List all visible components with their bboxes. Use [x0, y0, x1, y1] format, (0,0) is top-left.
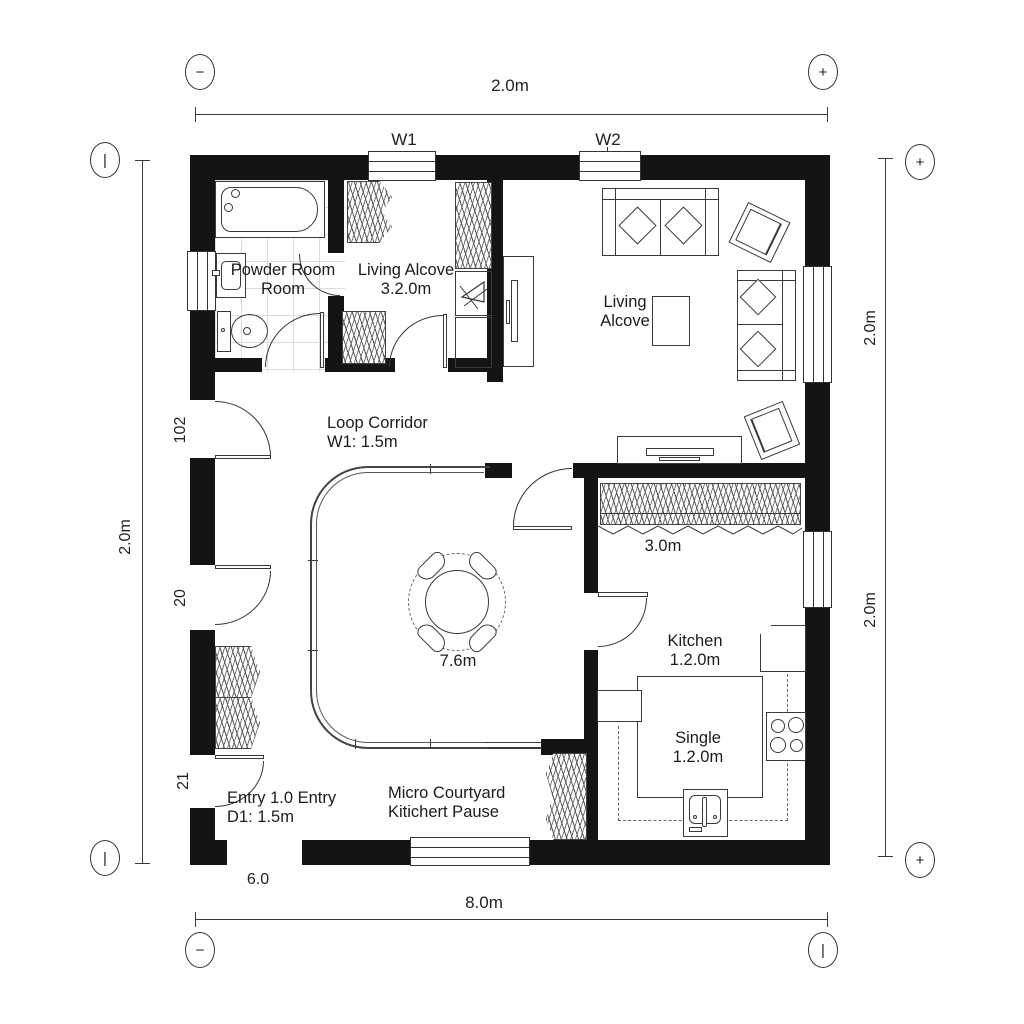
door-arc-102	[215, 401, 271, 457]
dim-label-right-bottom: 2.0m	[862, 592, 880, 628]
grid-bubble-right-top: +	[905, 144, 935, 180]
window-right-lower	[803, 531, 832, 608]
wall-stub	[541, 739, 598, 755]
label-kitchen: Kitchen 1.2.0m	[649, 632, 741, 670]
door-arc-alcove	[389, 315, 443, 367]
grid-bubble-top-left: −	[185, 54, 215, 90]
dim-tick	[195, 912, 196, 927]
wall-right	[805, 155, 830, 268]
dimension-line-left	[142, 160, 143, 864]
window-tag-w2: W2	[578, 130, 638, 150]
wall-left	[190, 155, 215, 253]
label-line: Alcove	[586, 312, 664, 331]
wall-bottom	[302, 840, 412, 865]
label-line: Powder Room	[213, 261, 353, 280]
grid-bubble-right-bottom: +	[905, 842, 935, 878]
sofa-top-arm	[705, 188, 719, 256]
wall-powder-south	[215, 358, 262, 372]
kitchen-wardrobe-rail	[600, 513, 801, 514]
door-tag-102: 102	[172, 417, 190, 444]
label-wardrobe-dim: 3.0m	[627, 537, 699, 556]
label-line: 1.2.0m	[649, 651, 741, 670]
wall-left	[190, 458, 215, 565]
bathtub-faucet	[231, 189, 240, 198]
door-leaf-alcove	[443, 314, 447, 368]
glass-tick	[430, 739, 431, 749]
label-living-alcove-room: Living Alcove 3.2.0m	[336, 261, 476, 299]
dim-tick	[827, 912, 828, 927]
kitchen-wardrobe	[600, 483, 801, 525]
label-line: Room	[213, 280, 353, 299]
grid-bubble-bottom-left: −	[185, 932, 215, 968]
sofa-right-arm	[737, 270, 796, 281]
dimension-line-top	[195, 114, 828, 115]
label-line: W1: 1.5m	[327, 433, 428, 452]
alcove-closet-bottom	[342, 311, 386, 364]
door-leaf-powder	[320, 312, 324, 368]
wall-left	[190, 310, 215, 400]
label-entry: Entry 1.0 Entry D1: 1.5m	[227, 789, 336, 827]
sofa-seat-divider	[738, 324, 782, 325]
alcove-closet-top	[347, 181, 392, 243]
desk-monitor	[646, 448, 714, 456]
window-bottom	[410, 837, 530, 866]
entry-wardrobe	[215, 646, 260, 698]
wall-right	[805, 607, 830, 865]
dimension-line-right	[885, 158, 886, 857]
label-table-dim: 7.6m	[422, 652, 494, 671]
window-w2	[579, 151, 641, 181]
door-arc-20	[215, 571, 271, 625]
round-dining-table	[425, 570, 489, 634]
sofa-top-back	[602, 188, 719, 200]
sofa-right-arm	[737, 370, 796, 381]
label-line: Loop Corridor	[327, 414, 428, 433]
label-powder-room: Powder Room Room	[213, 261, 353, 299]
wall-top	[436, 155, 581, 180]
window-left	[187, 251, 216, 311]
label-line: D1: 1.5m	[227, 808, 336, 827]
alcove-cabinet	[455, 317, 492, 368]
glass-tick	[308, 650, 318, 651]
sink-knob	[713, 815, 717, 819]
entry-wardrobe	[215, 697, 260, 749]
courtyard-closet	[546, 753, 587, 840]
dim-tick	[135, 863, 150, 864]
label-single: Single 1.2.0m	[652, 729, 744, 767]
door-tag-21: 21	[175, 772, 193, 790]
label-line: Single	[652, 729, 744, 748]
grid-bubble-top-right: +	[808, 54, 838, 90]
toilet-flush	[243, 327, 251, 335]
wall-right	[805, 382, 830, 531]
wall-top	[190, 155, 370, 180]
glass-tick	[308, 560, 318, 561]
label-living: Living Alcove	[586, 293, 664, 331]
label-line: 1.2.0m	[652, 748, 744, 767]
door-tag-6_0: 6.0	[230, 871, 286, 889]
glass-partition-ext	[484, 742, 541, 743]
stove-burner	[770, 737, 786, 753]
armchair	[729, 202, 791, 263]
label-line: Living	[586, 293, 664, 312]
glass-tick	[430, 464, 431, 474]
sofa-right-back	[782, 270, 796, 381]
alcove-wardrobe	[455, 182, 492, 269]
grid-bubble-bottom-right: |	[808, 932, 838, 968]
door-arc-kitchen	[598, 598, 647, 647]
window-w1	[368, 151, 436, 181]
door-leaf-kitchen	[598, 592, 648, 597]
dim-tick	[878, 856, 893, 857]
wall-kitchen-west	[584, 463, 598, 593]
wall-bottom	[530, 840, 830, 865]
label-micro-courtyard: Micro Courtyard Kitichert Pause	[388, 784, 505, 822]
door-leaf-20	[215, 565, 271, 569]
label-line: Entry 1.0 Entry	[227, 789, 336, 808]
dim-label-left: 2.0m	[117, 519, 135, 555]
glass-partition-ext	[488, 747, 542, 749]
sink-soap-dish	[689, 827, 702, 832]
wall-left	[190, 630, 215, 755]
dim-label-bottom: 8.0m	[424, 893, 544, 913]
grid-bubble-left-top: |	[90, 142, 120, 178]
window-right-upper	[803, 266, 832, 383]
tv-screen	[511, 280, 518, 342]
bathtub-faucet	[224, 203, 233, 212]
label-line: Living Alcove	[336, 261, 476, 280]
stove-burner	[788, 717, 804, 733]
door-leaf-courtyard	[513, 526, 572, 530]
window-tag-w1: W1	[374, 130, 434, 150]
dim-tick	[827, 107, 828, 122]
wall-left	[190, 808, 215, 865]
desk-chair	[744, 401, 801, 460]
glass-tick	[355, 739, 356, 749]
sink-knob	[693, 815, 697, 819]
door-leaf-102	[215, 455, 271, 459]
door-tag-20: 20	[172, 589, 190, 607]
wall-top	[641, 155, 830, 180]
kitchen-cabinet-right	[760, 625, 806, 672]
dim-label-right-top: 2.0m	[862, 310, 880, 346]
dimension-line-bottom	[195, 919, 828, 920]
dim-tick	[878, 158, 893, 159]
counter-dashed-line	[618, 726, 619, 821]
stove-burner	[790, 739, 803, 752]
wall-living-kitchen	[573, 463, 805, 478]
door-leaf-21	[215, 755, 264, 759]
dim-tick	[135, 160, 150, 161]
sofa-top-arm	[602, 188, 616, 256]
label-line: Kitichert Pause	[388, 803, 505, 822]
label-loop-corridor: Loop Corridor W1: 1.5m	[327, 414, 428, 452]
kitchen-faucet	[702, 797, 707, 827]
label-line: 3.2.0m	[336, 280, 476, 299]
dim-label-top: 2.0m	[450, 76, 570, 96]
toilet-dot	[221, 328, 225, 332]
floor-plan: − + | + | + − | 2.0m 8.0m 2.0m 2.0m 2.0m…	[0, 0, 1024, 1024]
grid-bubble-left-bottom: |	[90, 840, 120, 876]
label-line: Micro Courtyard	[388, 784, 505, 803]
desk-monitor-base	[659, 457, 700, 461]
sofa-seat-divider	[660, 200, 661, 255]
tv-mount	[506, 300, 510, 324]
stove-burner	[771, 719, 785, 733]
dim-tick	[195, 107, 196, 122]
wardrobe-zigzag-edge	[598, 523, 802, 537]
wall-powder-alcove	[328, 180, 344, 253]
label-line: Kitchen	[649, 632, 741, 651]
kitchen-cabinet-left	[597, 690, 642, 722]
door-arc-courtyard	[513, 468, 572, 526]
